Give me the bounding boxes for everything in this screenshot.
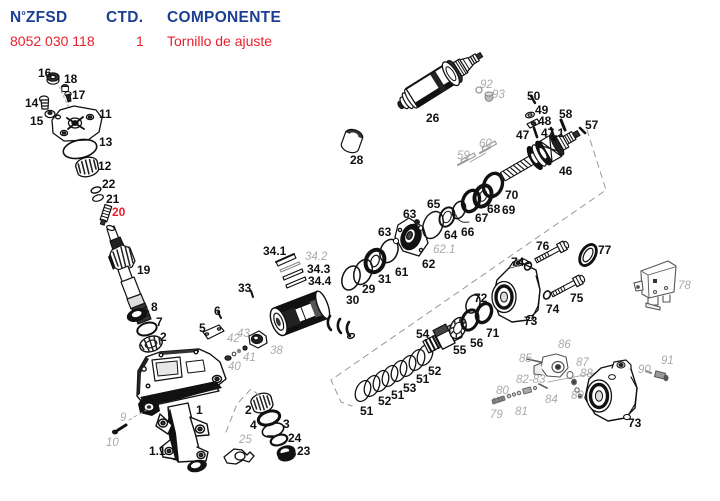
- svg-text:1.1: 1.1: [149, 444, 166, 458]
- svg-text:51: 51: [360, 404, 374, 418]
- svg-text:52: 52: [428, 364, 442, 378]
- svg-text:74: 74: [511, 255, 525, 269]
- svg-text:90: 90: [638, 364, 651, 376]
- svg-text:50: 50: [527, 89, 541, 103]
- svg-text:15: 15: [30, 114, 44, 128]
- svg-text:25: 25: [238, 434, 252, 446]
- svg-text:89: 89: [571, 390, 584, 402]
- svg-text:62.1: 62.1: [433, 244, 455, 256]
- svg-text:53: 53: [403, 381, 417, 395]
- svg-text:91: 91: [661, 355, 674, 367]
- svg-text:60: 60: [479, 138, 492, 150]
- svg-text:34.2: 34.2: [305, 251, 328, 263]
- svg-text:61: 61: [395, 265, 409, 279]
- svg-text:55: 55: [453, 343, 467, 357]
- svg-text:81: 81: [515, 406, 528, 418]
- svg-text:29: 29: [362, 282, 376, 296]
- svg-text:23: 23: [297, 444, 311, 458]
- svg-text:5: 5: [199, 321, 206, 335]
- svg-text:63: 63: [403, 207, 417, 221]
- svg-text:13: 13: [99, 135, 113, 149]
- svg-text:74: 74: [546, 302, 560, 316]
- svg-text:1: 1: [196, 403, 203, 417]
- svg-text:69: 69: [502, 203, 516, 217]
- svg-text:31: 31: [378, 272, 392, 286]
- svg-text:38: 38: [270, 345, 283, 357]
- svg-text:19: 19: [137, 263, 151, 277]
- svg-text:14: 14: [25, 96, 39, 110]
- svg-text:7: 7: [156, 315, 163, 329]
- svg-text:84: 84: [545, 394, 558, 406]
- svg-text:24: 24: [288, 431, 302, 445]
- svg-text:51: 51: [391, 388, 405, 402]
- svg-text:30: 30: [346, 293, 360, 307]
- svg-text:34.1: 34.1: [263, 244, 287, 258]
- svg-text:26: 26: [426, 111, 440, 125]
- svg-text:12: 12: [98, 159, 112, 173]
- svg-text:93: 93: [492, 89, 505, 101]
- svg-text:6: 6: [214, 304, 221, 318]
- svg-text:86: 86: [558, 339, 571, 351]
- svg-text:46: 46: [559, 164, 573, 178]
- svg-text:33: 33: [238, 281, 252, 295]
- svg-text:28: 28: [350, 153, 364, 167]
- svg-text:17: 17: [72, 88, 86, 102]
- svg-text:41: 41: [243, 352, 256, 364]
- svg-text:3: 3: [283, 417, 290, 431]
- svg-text:9: 9: [120, 412, 127, 424]
- svg-text:43: 43: [237, 328, 250, 340]
- svg-text:71: 71: [486, 326, 500, 340]
- svg-text:85: 85: [519, 353, 532, 365]
- svg-text:82-83: 82-83: [516, 374, 546, 386]
- svg-text:54: 54: [416, 327, 430, 341]
- svg-text:72: 72: [474, 291, 488, 305]
- svg-text:11: 11: [99, 107, 112, 121]
- svg-text:64: 64: [444, 228, 458, 242]
- svg-text:77: 77: [598, 243, 612, 257]
- svg-text:2: 2: [245, 403, 252, 417]
- svg-text:76: 76: [536, 239, 550, 253]
- svg-text:73: 73: [628, 416, 642, 430]
- svg-text:68: 68: [487, 202, 501, 216]
- svg-text:10: 10: [106, 437, 119, 449]
- svg-text:80: 80: [496, 385, 509, 397]
- svg-text:22: 22: [102, 177, 116, 191]
- svg-text:47.1: 47.1: [541, 126, 565, 140]
- svg-text:79: 79: [490, 409, 503, 421]
- svg-text:20: 20: [112, 205, 126, 219]
- svg-text:34.4: 34.4: [308, 274, 332, 288]
- svg-text:56: 56: [470, 336, 484, 350]
- svg-text:78: 78: [678, 280, 691, 292]
- svg-text:16: 16: [38, 66, 52, 80]
- svg-text:40: 40: [228, 361, 241, 373]
- svg-text:8: 8: [151, 300, 158, 314]
- svg-text:18: 18: [64, 72, 78, 86]
- svg-text:62: 62: [422, 257, 436, 271]
- svg-text:75: 75: [570, 291, 584, 305]
- svg-text:73: 73: [524, 314, 538, 328]
- svg-text:58: 58: [559, 107, 573, 121]
- svg-text:47: 47: [516, 128, 530, 142]
- svg-text:63: 63: [378, 225, 392, 239]
- svg-text:21: 21: [106, 192, 120, 206]
- svg-text:59: 59: [457, 150, 470, 162]
- svg-text:4: 4: [250, 418, 257, 432]
- svg-text:65: 65: [427, 197, 441, 211]
- svg-text:70: 70: [505, 188, 519, 202]
- svg-text:57: 57: [585, 118, 599, 132]
- svg-text:51: 51: [416, 372, 430, 386]
- svg-text:66: 66: [461, 225, 475, 239]
- svg-text:52: 52: [378, 394, 392, 408]
- svg-text:88: 88: [580, 368, 593, 380]
- svg-text:2: 2: [160, 330, 167, 344]
